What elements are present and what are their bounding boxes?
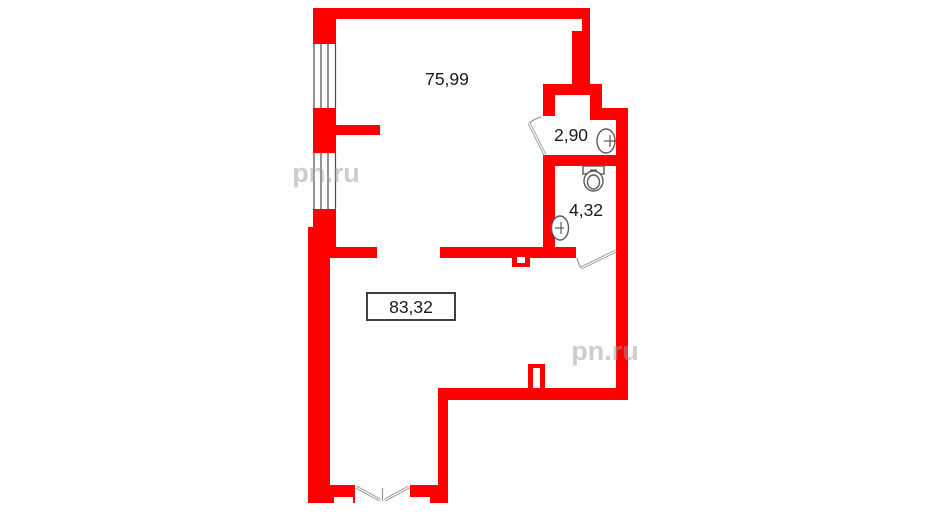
watermark-text: pn.ru xyxy=(292,158,360,188)
wall-room2-room3-divider xyxy=(543,155,628,166)
wall-connector-vertical xyxy=(438,388,448,488)
room-area-label-3: 4,32 xyxy=(569,200,603,220)
threshold-notch-right xyxy=(410,497,430,503)
wall-divider-main xyxy=(440,247,555,258)
wall-left-upper-2 xyxy=(313,108,336,153)
wall-room3-left xyxy=(543,155,555,258)
room-area-label-2: 2,90 xyxy=(554,125,588,145)
wall-left-lower xyxy=(308,227,330,503)
wall-notch-top-right xyxy=(572,19,582,31)
window-upper xyxy=(314,44,336,108)
wall-top xyxy=(315,8,590,19)
floor-plan-canvas: 75,99 2,90 4,32 83,32 pn.ru pn.ru xyxy=(0,0,936,527)
sink-icon xyxy=(552,216,569,240)
room-area-label-1: 75,99 xyxy=(425,69,469,89)
wall-divider-stub xyxy=(330,247,377,258)
door-entry-double xyxy=(356,487,409,501)
wall-left-upper-1 xyxy=(313,8,336,44)
room-area-label-4: 83,32 xyxy=(389,297,433,317)
toilet-icon xyxy=(583,166,604,191)
wall-room2-left xyxy=(543,84,555,116)
total-area-box: 83,32 xyxy=(367,293,455,320)
stub-bottom-inner-white xyxy=(533,368,540,388)
wall-step-vertical xyxy=(590,84,602,120)
watermark-text: pn.ru xyxy=(571,336,639,366)
wall-stub-left xyxy=(336,125,380,135)
wall-room3-bottom xyxy=(543,247,576,258)
door-room2 xyxy=(529,117,545,155)
sink-icon xyxy=(597,129,616,153)
pillar-inner-white xyxy=(517,257,525,263)
threshold-notch-left xyxy=(334,497,353,503)
floor-plan: 75,99 2,90 4,32 83,32 pn.ru pn.ru xyxy=(0,0,936,527)
door-room3 xyxy=(577,251,616,268)
